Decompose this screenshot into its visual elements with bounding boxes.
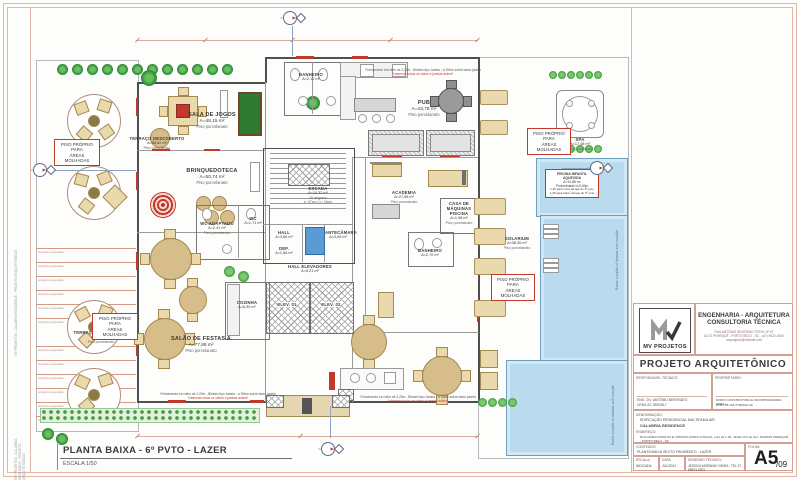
- main-pool-lower: [506, 360, 628, 456]
- elevator-shaft: [266, 282, 310, 334]
- shrub-icon: [594, 145, 602, 153]
- shrub-icon: [488, 398, 497, 407]
- shelf: [250, 162, 260, 192]
- round-table: [150, 238, 192, 280]
- shrub-icon: [594, 71, 602, 79]
- partition: [312, 62, 313, 114]
- partition: [263, 224, 353, 225]
- dim-tick: [475, 38, 480, 43]
- tree-icon: [162, 64, 173, 75]
- shaft: [332, 395, 350, 408]
- round-table: [351, 324, 387, 360]
- wall: [265, 57, 267, 83]
- chair: [164, 229, 176, 239]
- bar-stool: [386, 114, 395, 123]
- pool-step: [543, 268, 559, 273]
- pool-drain-note: Ralos sucção c/ bomba anti sucção: [615, 230, 619, 290]
- round-table: [179, 286, 207, 314]
- lounger: [474, 258, 506, 275]
- plant-icon: [224, 266, 235, 277]
- mv-logo-mark: [648, 319, 682, 343]
- stair-landing: [288, 164, 330, 186]
- room-label-hall-elevadores: HALL ELEVADORESA=5,21 m²: [288, 264, 332, 274]
- sink: [326, 96, 336, 106]
- shrub-icon: [558, 71, 566, 79]
- section-line: [50, 170, 136, 171]
- shrub-icon: [567, 71, 575, 79]
- shrub-icon: [508, 398, 517, 407]
- denom-label: DENOMINAÇÃO:: [636, 413, 663, 417]
- scale-cell: ESCALA: INDICADA: [633, 456, 659, 471]
- logo-cell: MV PROJETOS: [633, 303, 695, 355]
- section-marker-left: [30, 159, 56, 181]
- tree-icon: [207, 64, 218, 75]
- partition: [365, 158, 366, 333]
- pool-step: [543, 234, 559, 239]
- plant-icon: [238, 271, 249, 282]
- chair: [436, 347, 448, 357]
- denom-line1: EDIFICAÇÃO RESIDENCIAL MULTIFAMILIAR: [640, 418, 715, 422]
- chair: [158, 359, 170, 369]
- content-cell: CONTEÚDO: PLANTA BAIXA SEXTO PAVIMENTO -…: [633, 443, 745, 456]
- bar-island: [354, 98, 396, 112]
- sink: [432, 238, 442, 248]
- room-label-hall: HALLA=3,86 m²: [275, 230, 293, 240]
- room-label-terraco-superior: TERRAÇO DESCOBERTOA=58,62 m²Piso porcela…: [130, 136, 185, 150]
- tree-icon: [222, 64, 233, 75]
- shrub-icon: [498, 398, 507, 407]
- wet-area-label: PISO PRÓPRIO PARAÁREAS MOLHADAS: [491, 274, 535, 301]
- gym-mat: [372, 204, 400, 219]
- room-label-elev-1: ELEV. 01: [277, 302, 296, 307]
- door: [302, 398, 312, 414]
- window-marker: [136, 172, 139, 190]
- room-label-escada: ESCADAA=10,32 m²20 degrause: 27cm / p: 1…: [304, 186, 333, 204]
- wet-area-label: PISO PRÓPRIO PARAÁREAS MOLHADAS: [92, 313, 138, 340]
- tree-icon: [117, 64, 128, 75]
- tree-icon: [42, 428, 54, 440]
- resp-label: RESPONSÁVEL TÉCNICO:: [636, 376, 678, 380]
- room-label-banheiro-academia: BANHEIROA=2,70 m²: [418, 248, 442, 258]
- chair: [159, 106, 168, 117]
- elevator-shaft-blue: [305, 227, 325, 255]
- sink: [350, 373, 360, 383]
- counter: [227, 284, 240, 336]
- room-label-wc-adaptado: WC ADAPTADOA=2,41 m²Piso porcelanato: [200, 221, 234, 235]
- shrub-icon: [576, 71, 584, 79]
- chair: [187, 278, 198, 287]
- room-label-sala-de-jogos: SALA DE JOGOSA=48,15 m²Piso porcelanato: [188, 112, 236, 129]
- window-marker: [204, 149, 220, 152]
- play-rug: [150, 192, 176, 218]
- treadmill-console: [462, 170, 466, 185]
- pergola-strip: projeção pergolado: [36, 248, 136, 259]
- partition: [302, 224, 303, 262]
- sink: [222, 244, 232, 254]
- room-label-salao-festas: SALÃO DE FESTAS AA=77,88 m²Piso porcelan…: [171, 336, 231, 353]
- date-cell: DATA: JUL/2021: [659, 456, 685, 471]
- lounger: [480, 90, 508, 105]
- addr-value: RUA MÁRIO PADILHA E VIRGÍNIA IZORA CHAGA…: [640, 435, 790, 443]
- logo-text: MV PROJETOS: [643, 343, 687, 352]
- sink: [298, 96, 308, 106]
- toilet: [202, 208, 212, 220]
- section-line: [292, 26, 293, 56]
- sheet-total: /09: [776, 460, 787, 469]
- chair: [178, 87, 189, 96]
- lounger: [474, 198, 506, 215]
- drawing-sheet: MV PROJETOS - CALABRIA RESIDENCE - PROJE…: [0, 0, 800, 480]
- content-value: PLANTA BAIXA SEXTO PAVIMENTO - LAZER: [637, 450, 711, 454]
- section-marker-bottom: [318, 438, 344, 460]
- window-marker: [352, 56, 368, 59]
- doc-title: PROJETO ARQUITETÔNICO: [634, 359, 792, 370]
- resp-cell: RESPONSÁVEL TÉCNICO: ENG. CIV. ANTÔNIO B…: [633, 373, 712, 410]
- chair: [461, 370, 471, 382]
- denom-line2: CALABRIA RESIDENCE: [640, 423, 685, 428]
- tree-icon: [57, 64, 68, 75]
- drawing-title: PLANTA BAIXA - 6º PVTO - LAZER: [63, 445, 227, 456]
- pergola-strip: projeção pergolado: [36, 276, 136, 287]
- hedge-row: [40, 408, 260, 423]
- draft-value: JÉSSICA MORANDI VIEIRA - TEL 47 99823-02…: [688, 464, 744, 472]
- draft-label: DESENHO TÉCNICO:: [688, 458, 722, 462]
- tree-icon: [192, 64, 203, 75]
- section-line: [330, 406, 331, 438]
- draftsman-cell: DESENHO TÉCNICO: JÉSSICA MORANDI VIEIRA …: [685, 456, 745, 471]
- company-email: mvprojetos@hotmail.com: [696, 338, 792, 342]
- bar-stool: [372, 114, 381, 123]
- gym-machine: [378, 292, 394, 318]
- company-line2: CONSULTORIA TÉCNICA: [696, 319, 792, 326]
- pub-table: [438, 88, 464, 114]
- scale-label: ESCALA:: [636, 458, 650, 462]
- chair: [463, 96, 472, 107]
- shrub-icon: [549, 71, 557, 79]
- tree-icon: [141, 70, 157, 86]
- room-label-banheiro-superior: BANHEIROA=2,12 m²: [299, 72, 323, 82]
- chair: [164, 279, 176, 289]
- doc-title-cell: PROJETO ARQUITETÔNICO: [633, 355, 793, 373]
- resp-name: ENG. CIV. ANTÔNIO BERTINATO: [637, 398, 687, 402]
- mv-logo: MV PROJETOS: [639, 308, 691, 353]
- glazing-spec-note: Fechamento em vidro de 2,20m - Blindex t…: [365, 68, 480, 76]
- sofa: [368, 130, 424, 156]
- window-marker: [168, 400, 186, 403]
- dimension-line-top: [137, 40, 478, 41]
- owner-cell: PROPRIETÁRIO: DOMO CONSTRUTORA E INCORPO…: [712, 373, 793, 410]
- room-label-pub: PUBA=43,78 m²Piso porcelanato: [408, 100, 439, 117]
- resp-crea: CREA-SC 052928-7: [637, 403, 667, 407]
- room-label-antecamara: ANTECÂMARAA=3,06 m²: [325, 230, 351, 240]
- room-label-casa-maquinas: CASA DE MÁQUINAS PISCINAA=1,98 m²Piso po…: [441, 201, 477, 225]
- spa-jet: [566, 100, 573, 107]
- pool-table: [238, 92, 262, 136]
- chair: [446, 80, 457, 89]
- denom-cell: DENOMINAÇÃO: EDIFICAÇÃO RESIDENCIAL MULT…: [633, 410, 793, 443]
- sheet-cell: FOLHA: A5 /09: [745, 443, 793, 471]
- room-label-wc: WCA=1,71 m²: [244, 216, 262, 226]
- room-label-brinquedoteca: BRINQUEDOTECAA=50,74 m²Piso porcelanato: [186, 168, 237, 185]
- room-label-academia: ACADEMIAA=27,58 m²Piso porcelanato: [391, 190, 418, 204]
- pool-drain-note: Ralos sucção c/ bomba anti sucção: [611, 385, 615, 445]
- section-marker-right: [587, 157, 613, 179]
- chair: [187, 313, 198, 322]
- drawing-scale: ESCALA 1/50: [63, 461, 97, 467]
- signature-line: [637, 396, 707, 397]
- tree-icon: [72, 64, 83, 75]
- owner-label: PROPRIETÁRIO:: [715, 376, 742, 380]
- scale-value: INDICADA: [636, 464, 652, 468]
- sofa: [426, 130, 475, 156]
- room-label-solarium: SOLARIUMA=38,30 m²Piso porcelanato: [504, 236, 531, 250]
- pergola-strip: projeção pergolado: [36, 262, 136, 273]
- shrub-icon: [585, 71, 593, 79]
- content-label: CONTEÚDO:: [636, 445, 656, 449]
- section-line: [562, 168, 590, 169]
- addr-label: ENDEREÇO:: [636, 430, 656, 434]
- round-table: [422, 356, 462, 396]
- sheet-number: A5: [754, 448, 778, 470]
- window-marker: [250, 400, 264, 403]
- room-label-elev-2: ELEV. 02: [321, 302, 340, 307]
- date-label: DATA:: [662, 458, 671, 462]
- gym-bench: [372, 164, 402, 177]
- stove: [384, 372, 396, 384]
- spa-jet: [588, 122, 595, 129]
- room-label-cozinha: COZINHAA=6,30 m²: [237, 300, 257, 310]
- lounger: [480, 120, 508, 135]
- section-marker-top: [280, 7, 306, 29]
- pergola-table: [88, 187, 100, 199]
- partition: [238, 205, 239, 258]
- chair: [191, 253, 201, 265]
- wall: [137, 82, 266, 84]
- chair: [140, 253, 150, 265]
- shrub-icon: [478, 398, 487, 407]
- wet-area-label: PISO PRÓPRIO PARAÁREAS MOLHADAS: [527, 128, 571, 155]
- gym-barbell: [370, 162, 402, 164]
- partition: [352, 157, 478, 158]
- dimension-line-bottom: [137, 436, 478, 437]
- elevator-shaft: [310, 282, 354, 334]
- red-cabinet: [329, 372, 335, 390]
- glazing-spec-note: Fechamento em vidro de 2,20m - Blindex t…: [160, 392, 275, 400]
- chair: [446, 113, 457, 122]
- glazing-spec-note: Fechamento em vidro de 2,20m - Blindex t…: [360, 395, 475, 403]
- date-value: JUL/2021: [662, 464, 676, 468]
- owner-cnpj: CNPJ 08.164.678/0001-99: [716, 403, 753, 407]
- pergola-strip: projeção pergolado: [36, 290, 136, 301]
- room-label-dep: DEP.A=1,66 m²: [275, 246, 293, 256]
- signature-line: [716, 396, 788, 397]
- wet-area-label: PISO PRÓPRIO PARAÁREAS MOLHADAS: [54, 139, 100, 166]
- title-underline: [60, 458, 292, 459]
- spa-jet: [588, 100, 595, 107]
- chair: [363, 315, 375, 325]
- sink: [366, 373, 376, 383]
- pergola-table: [88, 115, 100, 127]
- chair: [158, 309, 170, 319]
- deck-chair: [480, 350, 498, 368]
- tree-icon: [177, 64, 188, 75]
- lounger: [474, 228, 506, 245]
- bar-stool: [358, 114, 367, 123]
- lounger: [474, 300, 506, 317]
- tree-icon: [87, 64, 98, 75]
- chair: [413, 370, 423, 382]
- window-marker: [296, 56, 314, 59]
- company-line1: ENGENHARIA - ARQUITETURA: [696, 312, 792, 319]
- company-cell: ENGENHARIA - ARQUITETURA CONSULTORIA TÉC…: [695, 303, 793, 355]
- deck-chair: [480, 372, 498, 390]
- title-block: MV PROJETOS ENGENHARIA - ARQUITETURA CON…: [633, 303, 793, 471]
- tree-icon: [102, 64, 113, 75]
- footer-divider: [57, 444, 58, 470]
- window-marker: [136, 98, 139, 116]
